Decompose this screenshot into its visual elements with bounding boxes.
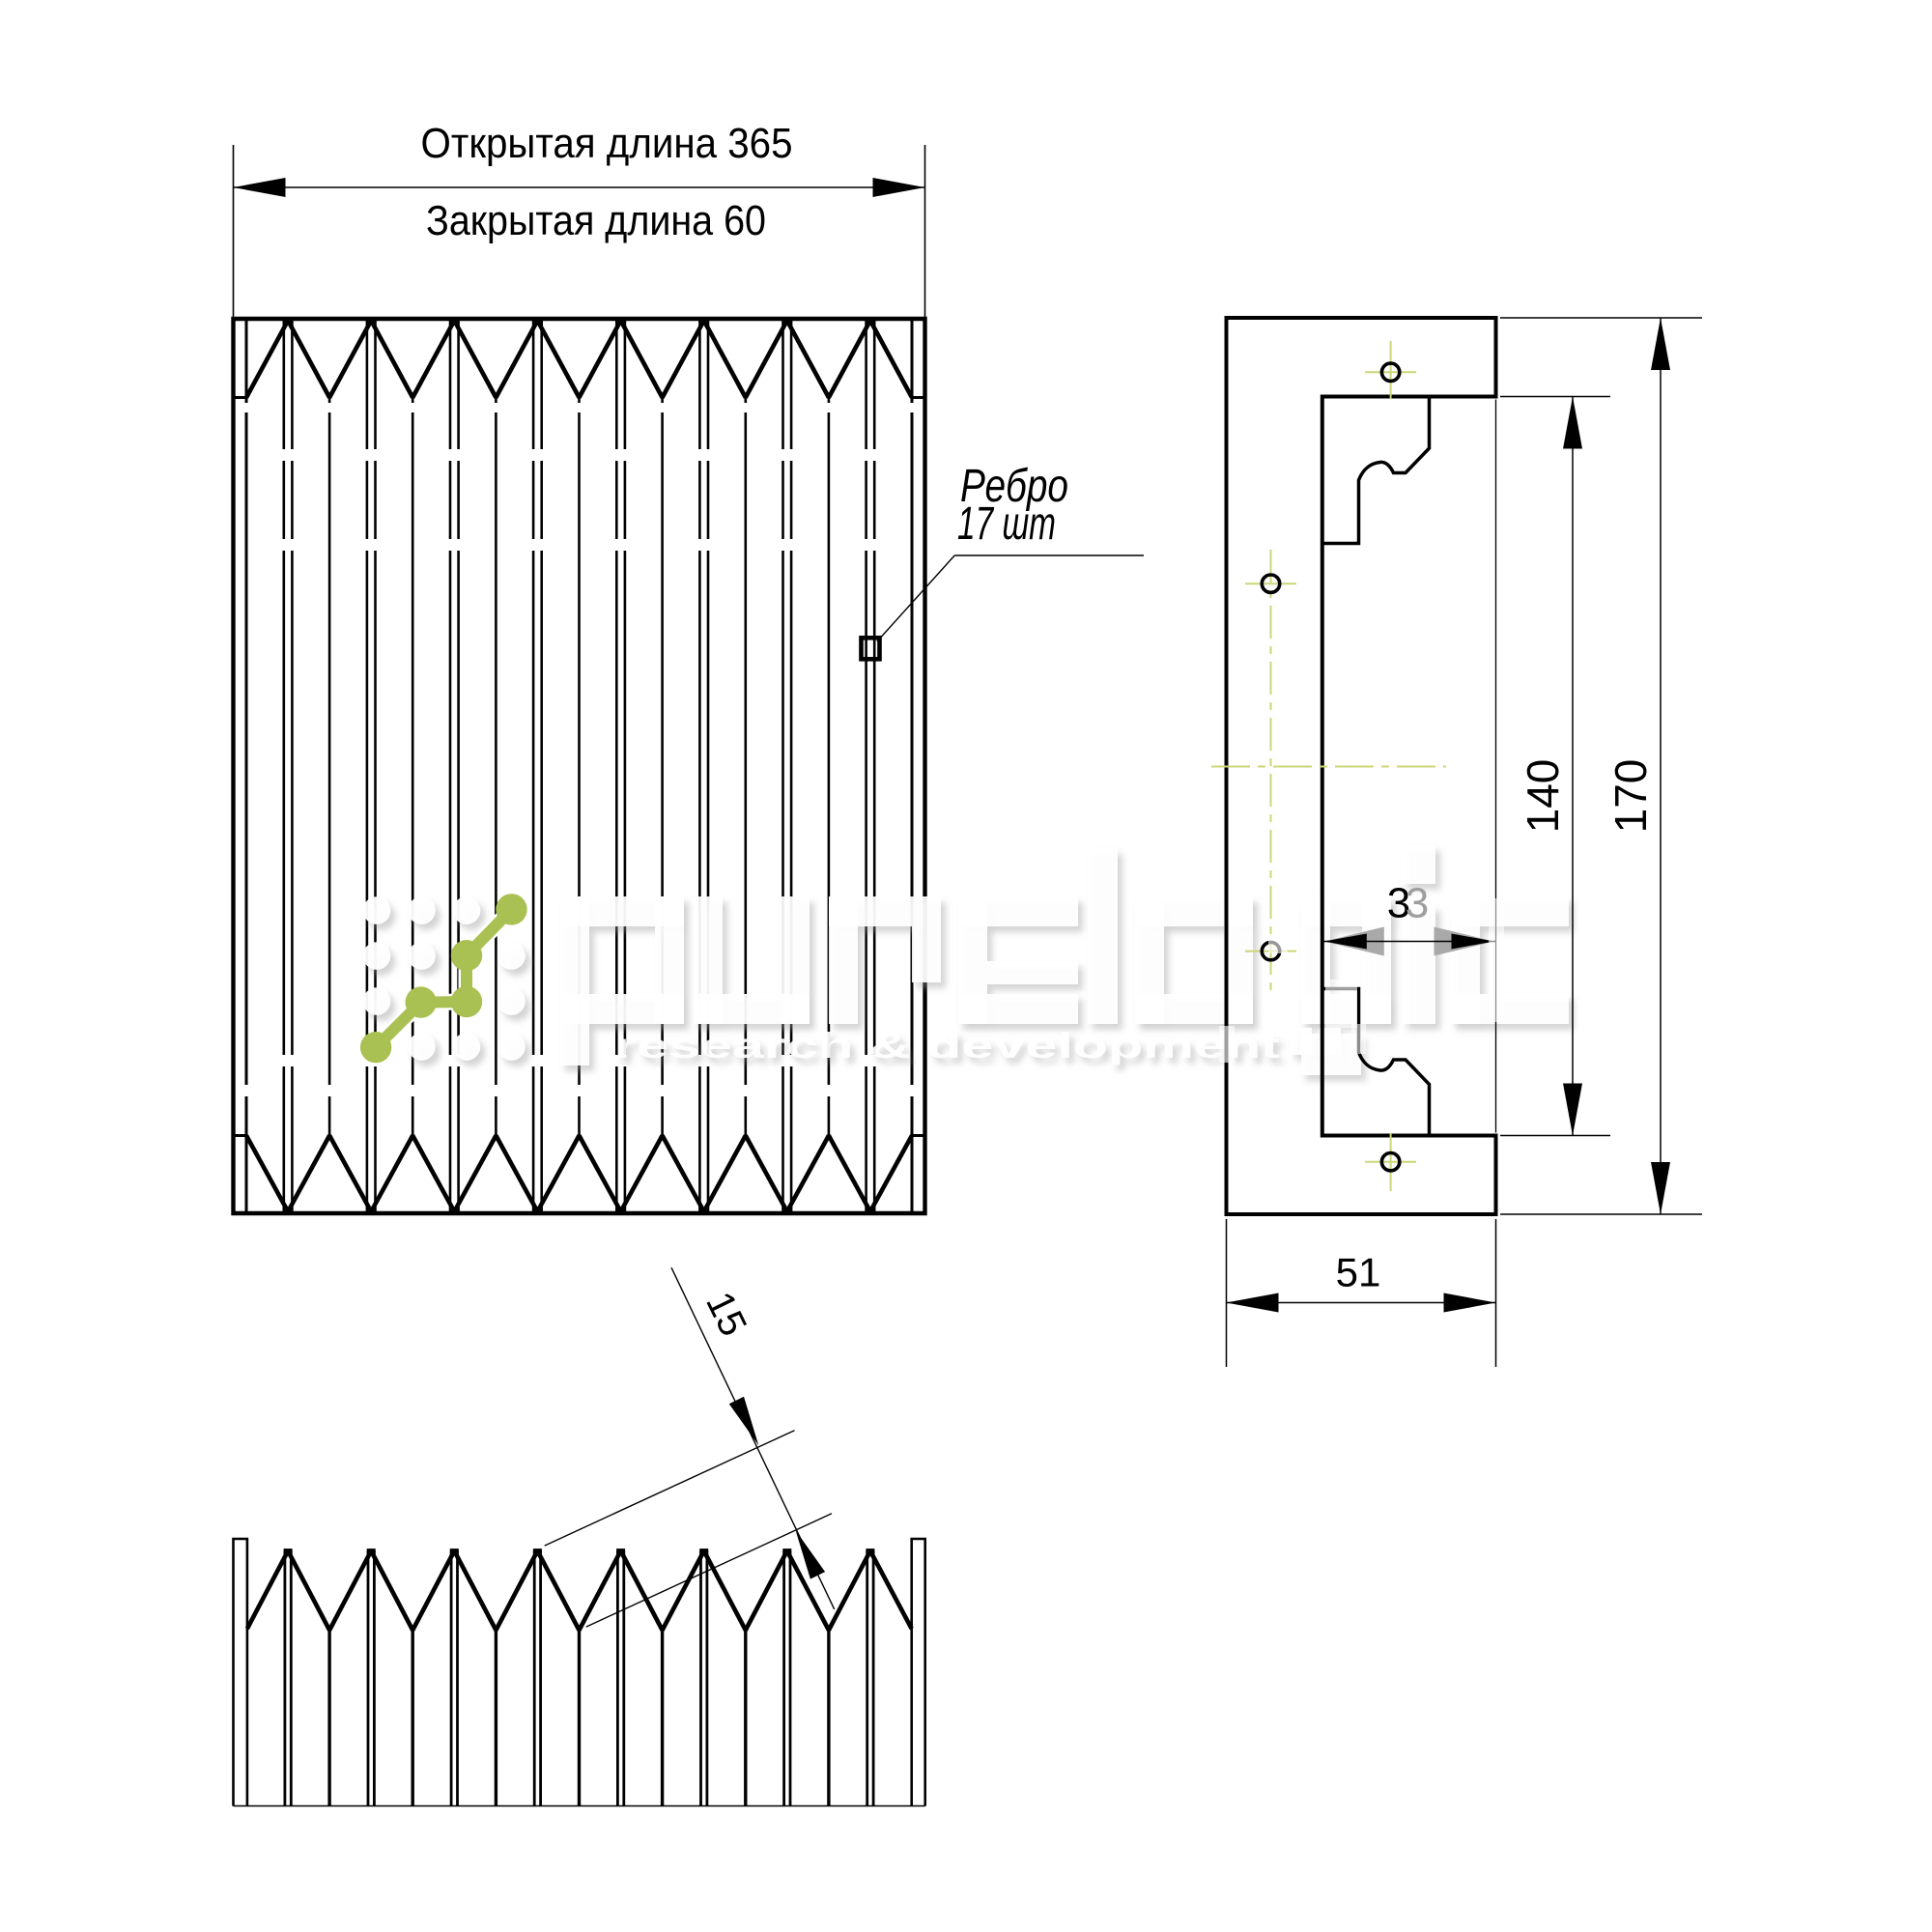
svg-text:3: 3: [1406, 880, 1429, 927]
svg-text:140: 140: [1518, 759, 1568, 834]
svg-text:17 шт: 17 шт: [957, 498, 1056, 550]
svg-text:Закрытая длина 60: Закрытая длина 60: [426, 197, 766, 244]
svg-text:170: 170: [1605, 759, 1656, 834]
svg-text:Открытая длина 365: Открытая длина 365: [421, 120, 793, 167]
svg-text:51: 51: [1336, 1250, 1381, 1295]
svg-text:research & development: research & development: [614, 1026, 1280, 1065]
